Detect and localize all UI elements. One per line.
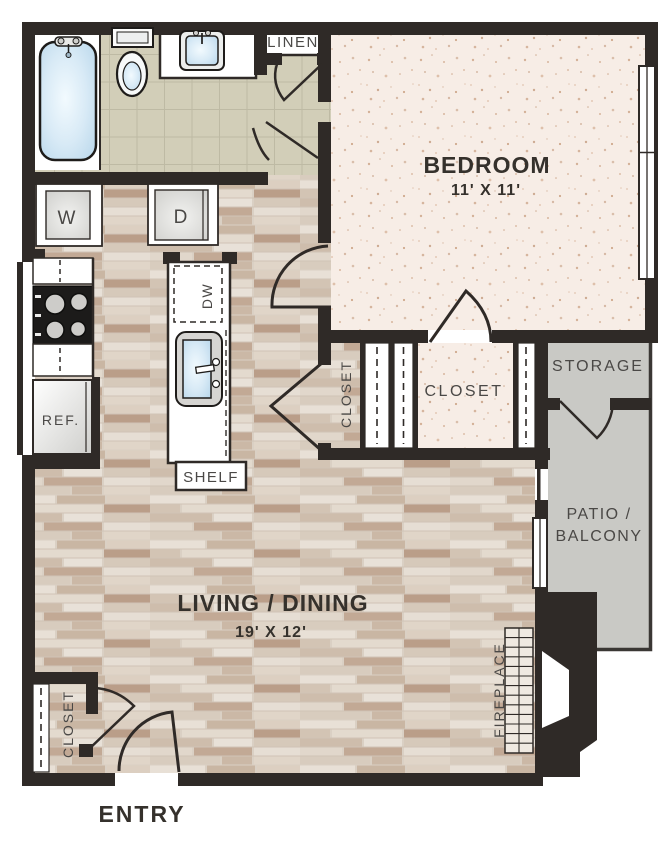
storage-label: STORAGE bbox=[552, 358, 644, 375]
refrigerator-label: REF. bbox=[42, 412, 80, 428]
fireplace-label: FIREPLACE bbox=[491, 642, 507, 738]
dryer-label: D bbox=[174, 207, 189, 228]
floor-plan: W D REF. DW bbox=[0, 0, 670, 844]
patio-balcony-label-2: BALCONY bbox=[556, 528, 643, 545]
bedroom-label: BEDROOM bbox=[423, 152, 550, 178]
bedroom-dimensions: 11' X 11' bbox=[451, 182, 521, 199]
entry-label: ENTRY bbox=[98, 801, 185, 827]
kitchen-left-counter: REF. bbox=[33, 258, 93, 454]
living-dining-dimensions: 19' X 12' bbox=[235, 624, 307, 641]
floor-plan-page: W D REF. DW bbox=[0, 0, 670, 844]
refrigerator: REF. bbox=[33, 380, 92, 454]
stove bbox=[33, 286, 93, 344]
shelf: SHELF bbox=[176, 462, 246, 490]
bedroom-closet-label: CLOSET bbox=[424, 383, 503, 400]
hall-closet-label: CLOSET bbox=[338, 360, 354, 428]
dryer: D bbox=[148, 184, 218, 245]
patio-door bbox=[537, 466, 541, 502]
living-dining-label: LIVING / DINING bbox=[177, 590, 368, 616]
bathroom-sink bbox=[180, 31, 224, 71]
washer: W bbox=[36, 184, 102, 246]
washer-label: W bbox=[58, 208, 77, 229]
entry-closet-label: CLOSET bbox=[60, 690, 76, 758]
patio-balcony-label-1: PATIO / bbox=[566, 506, 631, 523]
bathtub bbox=[40, 37, 96, 160]
dishwasher-label: DW bbox=[199, 283, 215, 309]
shelf-label: SHELF bbox=[183, 469, 239, 486]
kitchen-sink bbox=[176, 332, 222, 406]
linen-label: LINEN bbox=[267, 34, 319, 51]
